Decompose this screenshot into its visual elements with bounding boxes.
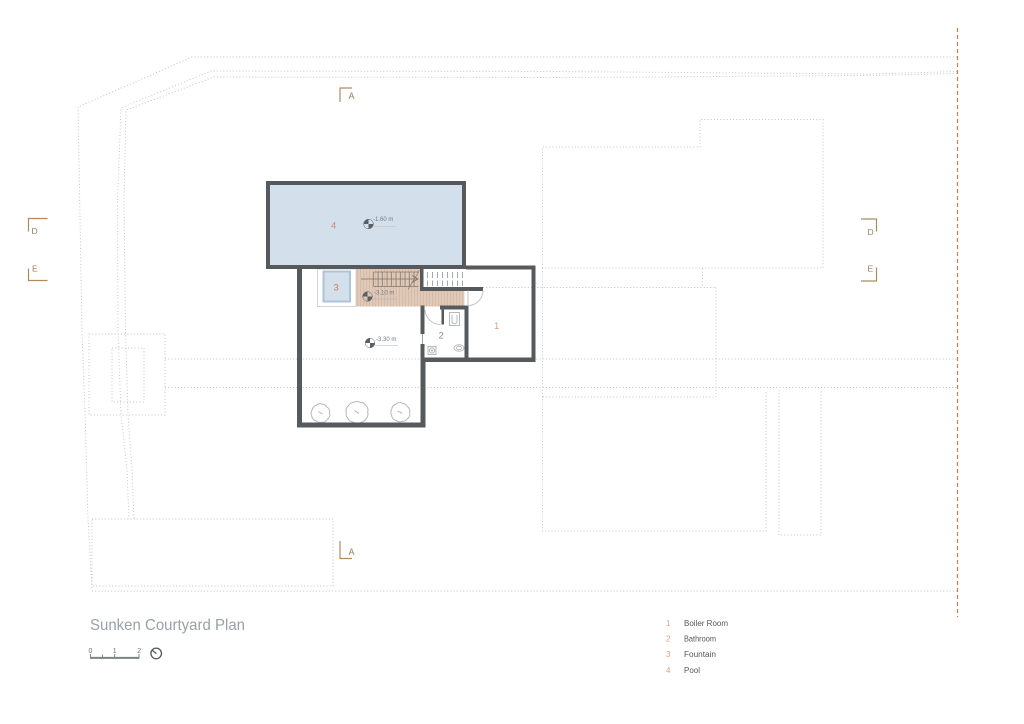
svg-text:3: 3: [334, 283, 339, 294]
svg-text:-3.30 m: -3.30 m: [376, 337, 396, 343]
svg-text:D: D: [868, 227, 874, 237]
svg-text:D: D: [32, 226, 38, 236]
svg-text:Boiler Room: Boiler Room: [684, 619, 728, 628]
svg-text:E: E: [868, 264, 874, 274]
svg-text:1: 1: [113, 648, 117, 655]
svg-text:2: 2: [666, 635, 671, 644]
svg-text:Pool: Pool: [684, 666, 700, 675]
svg-text:-3.10 m: -3.10 m: [374, 291, 394, 297]
svg-text:-1.60 m: -1.60 m: [373, 217, 393, 223]
svg-text:A: A: [349, 91, 355, 101]
svg-text:E: E: [32, 264, 38, 274]
svg-text:0: 0: [89, 648, 93, 655]
svg-text:4: 4: [331, 221, 336, 232]
svg-text:2: 2: [439, 331, 444, 342]
svg-text:1: 1: [666, 619, 671, 628]
svg-text:A: A: [349, 547, 355, 557]
svg-text:3: 3: [666, 650, 671, 659]
svg-text:Bathroom: Bathroom: [684, 635, 716, 644]
svg-text:4: 4: [666, 666, 671, 675]
svg-text:Sunken Courtyard Plan: Sunken Courtyard Plan: [90, 617, 245, 634]
svg-text:Fountain: Fountain: [684, 650, 716, 659]
svg-text:1: 1: [494, 321, 499, 332]
svg-text:2: 2: [137, 648, 141, 655]
